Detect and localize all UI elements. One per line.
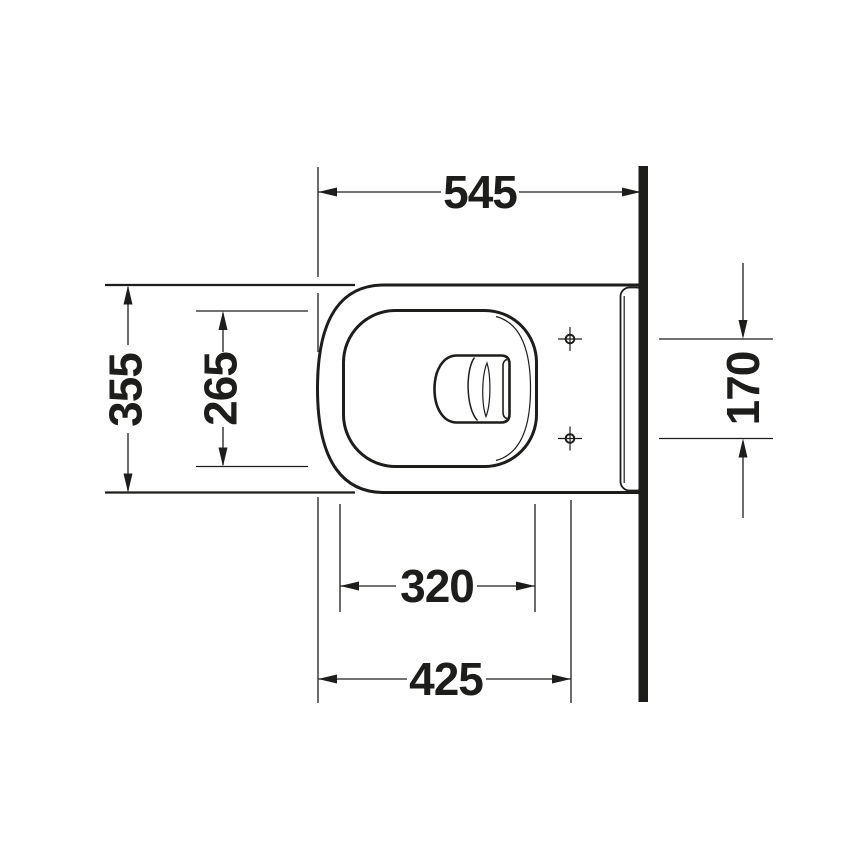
dim-425-arrow-left — [318, 675, 337, 684]
dim-170-arrow-bottom — [739, 439, 748, 458]
wall-section-bar — [639, 166, 649, 702]
toilet-plan-drawing: 545 355 265 170 320 425 — [0, 0, 868, 868]
dim-320-label: 320 — [400, 560, 474, 612]
dimension-seat-opening-width: 265 — [195, 311, 247, 467]
dimension-fixing-hole-distance: 425 — [318, 653, 571, 705]
dim-320-arrow-left — [340, 582, 359, 591]
dim-355-label: 355 — [100, 353, 152, 427]
dim-425-label: 425 — [409, 653, 483, 705]
mounting-hole-bottom — [558, 427, 582, 451]
dim-320-arrow-right — [516, 582, 535, 591]
dimension-overall-width: 355 — [100, 286, 152, 493]
dim-355-arrow-top — [124, 286, 133, 305]
dim-265-arrow-top — [219, 311, 228, 330]
dimension-fixing-hole-spacing: 170 — [717, 263, 769, 518]
dim-170-label: 170 — [717, 352, 769, 426]
technical-drawing-canvas: 545 355 265 170 320 425 — [0, 0, 868, 868]
dimension-seat-opening-depth: 320 — [340, 560, 535, 612]
dim-545-arrow-left — [318, 188, 337, 197]
dim-545-label: 545 — [443, 166, 517, 218]
dim-355-arrow-bottom — [124, 474, 133, 493]
mounting-hole-top — [558, 327, 582, 351]
dim-265-arrow-bottom — [219, 448, 228, 467]
dimension-overall-depth: 545 — [318, 166, 641, 218]
dim-545-arrow-right — [622, 188, 641, 197]
dim-425-arrow-right — [552, 675, 571, 684]
dim-170-arrow-top — [739, 320, 748, 339]
dim-265-label: 265 — [195, 352, 247, 426]
